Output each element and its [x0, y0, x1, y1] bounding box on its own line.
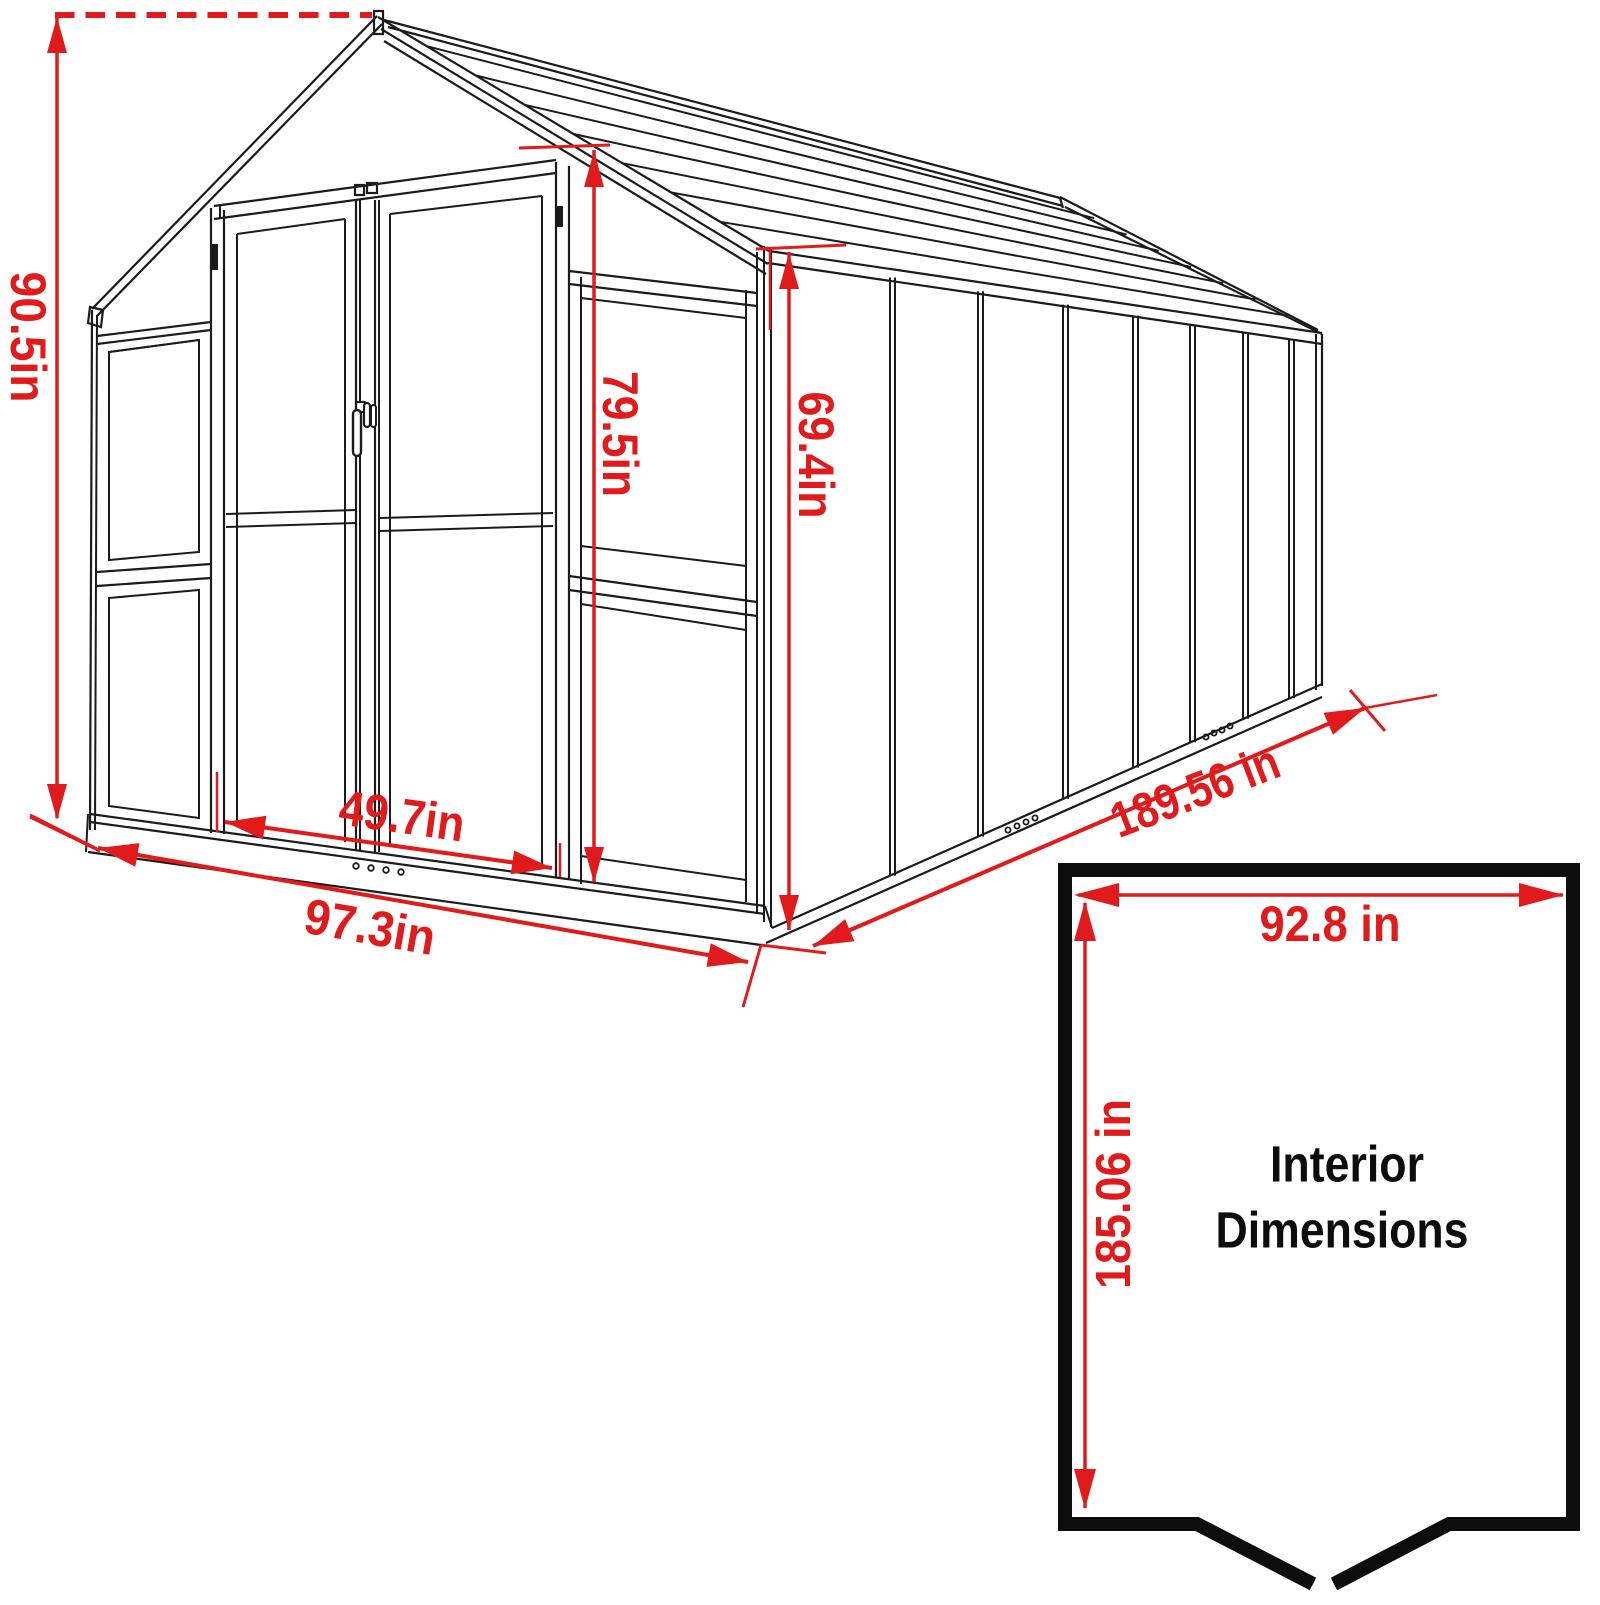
svg-text:189.56 in: 189.56 in	[1103, 733, 1287, 848]
svg-text:Dimensions: Dimensions	[1216, 1202, 1469, 1259]
svg-text:90.5in: 90.5in	[0, 272, 56, 403]
svg-text:69.4in: 69.4in	[788, 392, 844, 519]
svg-text:97.3in: 97.3in	[300, 888, 440, 966]
svg-text:185.06 in: 185.06 in	[1087, 1099, 1141, 1289]
svg-text:79.5in: 79.5in	[592, 371, 648, 497]
svg-text:Interior: Interior	[1270, 1136, 1424, 1193]
svg-text:92.8 in: 92.8 in	[1260, 896, 1401, 952]
